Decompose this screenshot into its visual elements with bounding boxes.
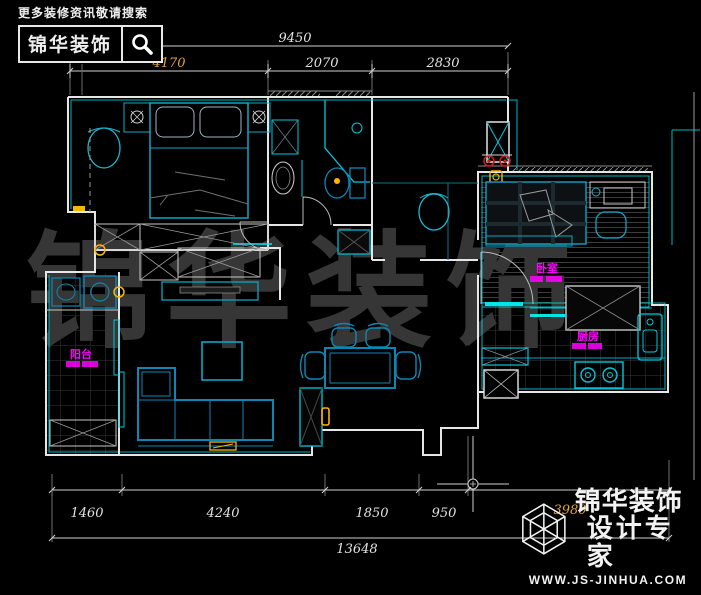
wall-hatch [270, 91, 648, 172]
header: 更多装修资讯敬请搜索 锦华装饰 [18, 4, 163, 63]
dim-2830: 2830 [425, 56, 459, 71]
footer-logo: 锦华装饰 设计专家 WWW.JS-JINHUA.COM [519, 488, 697, 587]
dim-1850: 1850 [355, 506, 388, 521]
search-hint-text: 更多装修资讯敬请搜索 [18, 4, 163, 21]
dim-total-top: 9450 [278, 31, 311, 46]
dim-total-bottom: 13648 [336, 542, 377, 557]
magnifier-icon [123, 27, 161, 61]
dim-1460: 1460 [70, 506, 103, 521]
dim-2070: 2070 [304, 56, 338, 71]
brand-search-logo: 锦华装饰 [18, 25, 163, 63]
cube-logo-icon [519, 500, 569, 558]
crosshair-marker [437, 436, 509, 512]
footer-tagline: 设计专家 [587, 515, 697, 570]
label-bedroom2: 卧室 [536, 261, 558, 275]
label-kitchen: 厨房 [577, 329, 599, 343]
dining-column [300, 388, 329, 446]
dim-4240: 4240 [205, 506, 239, 521]
brand-name: 锦华装饰 [20, 27, 123, 61]
dimension-labels-bottom: 1460 4240 1850 950 3980 13648 [70, 503, 586, 557]
dim-950: 950 [432, 506, 457, 521]
label-balcony: 阳台 [70, 347, 92, 361]
dimension-labels-top: 9450 4170 2070 2830 [151, 31, 459, 71]
footer-url: WWW.JS-JINHUA.COM [519, 573, 697, 587]
footer-brand: 锦华装饰 [575, 488, 697, 515]
floorplan-screenshot: 锦华装饰 [0, 0, 701, 595]
